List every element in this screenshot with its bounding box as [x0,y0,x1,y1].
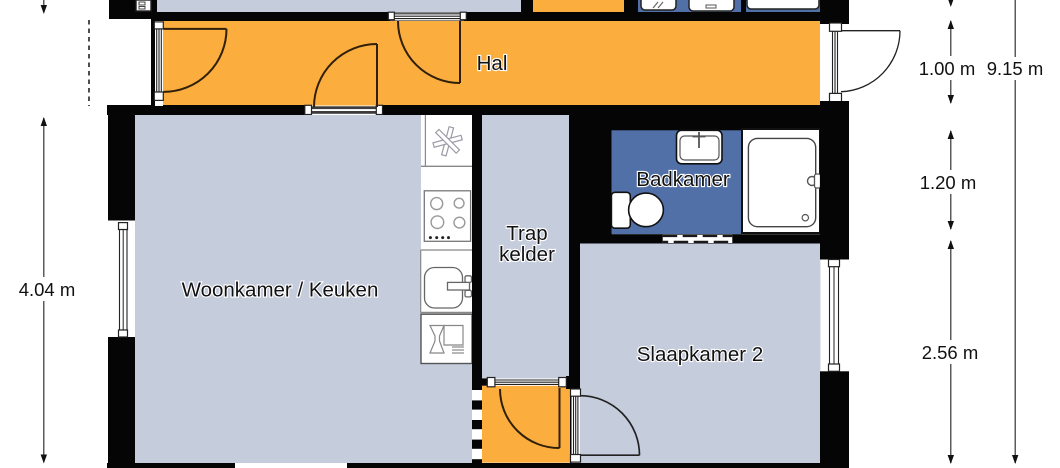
svg-text:4.04 m: 4.04 m [19,279,76,300]
svg-text:Badkamer: Badkamer [636,168,730,191]
svg-text:Slaapkamer 2: Slaapkamer 2 [637,343,763,366]
svg-text:2.56 m: 2.56 m [922,342,979,363]
svg-text:Trap: Trap [506,222,547,245]
svg-text:1.20 m: 1.20 m [920,172,977,193]
svg-text:9.15 m: 9.15 m [987,58,1044,79]
svg-text:1.00 m: 1.00 m [919,58,976,79]
svg-text:Woonkamer / Keuken: Woonkamer / Keuken [182,279,379,302]
svg-text:Hal: Hal [477,52,508,75]
svg-text:kelder: kelder [499,243,555,266]
